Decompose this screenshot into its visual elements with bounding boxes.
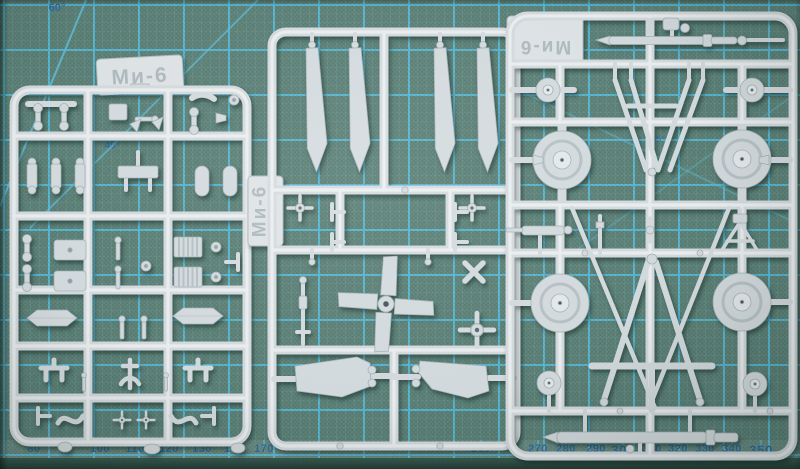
molded-part — [34, 104, 43, 131]
molded-part — [465, 263, 483, 281]
molded-part — [226, 254, 238, 270]
tripod-strut-top — [733, 214, 747, 223]
gun-pod-part — [522, 226, 564, 235]
sprue-gate — [337, 443, 343, 449]
molded-part — [163, 373, 168, 392]
molded-part — [119, 316, 125, 339]
molded-part — [596, 222, 604, 228]
rotor-blade-2 — [345, 47, 371, 172]
molded-part — [202, 408, 214, 424]
sprue-left: Ми-6 — [14, 55, 247, 454]
molded-part — [223, 166, 237, 196]
tail-rotor-blade — [334, 282, 381, 318]
molded-part — [681, 24, 690, 33]
label-tab-right-text: Ми-6 — [519, 36, 571, 57]
sprue-gate — [437, 443, 443, 449]
tail-boom-rod-end — [714, 433, 738, 442]
main-wheel — [531, 274, 589, 332]
tail-rotor-blade — [390, 290, 437, 326]
molded-part — [54, 240, 86, 260]
molded-part — [109, 104, 127, 120]
sprue-gate — [300, 277, 307, 284]
rotor-hub-part — [460, 313, 494, 347]
molded-part — [114, 412, 131, 429]
molded-part — [646, 226, 654, 234]
antenna-mast-part — [297, 282, 309, 344]
pitot-probe — [609, 37, 705, 45]
tail-boom-rod-tip — [543, 432, 558, 443]
molded-part — [121, 360, 139, 388]
sprue-foot — [144, 444, 160, 454]
sprue-gate — [480, 42, 487, 49]
molded-part — [54, 271, 86, 291]
molded-part — [174, 237, 202, 257]
sprue-right-parts — [506, 18, 773, 453]
molded-part — [27, 310, 77, 326]
stabilizer-tab — [412, 379, 420, 387]
rotor-blade-1 — [302, 47, 328, 172]
molded-part — [211, 272, 221, 282]
sprue-gate — [309, 42, 316, 49]
sprue-gate — [352, 42, 359, 49]
molded-part — [171, 416, 196, 423]
molded-part — [58, 416, 83, 423]
molded-part — [141, 261, 151, 271]
molded-part — [138, 412, 155, 429]
molded-part — [75, 158, 85, 194]
tail-wheel — [537, 371, 561, 395]
label-tab-middle-text: Ми-6 — [250, 185, 271, 237]
photo-model-kit-sprues: 8010011012013014017026027028029030031032… — [0, 0, 800, 469]
molded-part — [23, 265, 32, 292]
sprue-gate — [697, 250, 703, 256]
stabilizer-tab — [412, 365, 420, 373]
molded-part — [190, 108, 199, 135]
antenna-mast-collar — [299, 296, 307, 309]
molded-part — [27, 158, 37, 194]
sprue-gate — [647, 254, 657, 264]
tail-rotor-blade — [372, 252, 408, 299]
sprues-scene: Ми-6 — [0, 0, 800, 469]
molded-part — [173, 308, 223, 324]
rotor-blade-4 — [473, 47, 499, 172]
rotor-hub-part — [288, 196, 312, 220]
sprue-right: Ми-6 — [506, 16, 793, 456]
nose-wheel — [536, 78, 560, 102]
sprue-gate — [696, 398, 704, 406]
molded-part — [663, 18, 679, 30]
stabilizer-left — [295, 357, 371, 397]
rotor-hub-part — [460, 196, 484, 220]
sprue-gate — [309, 259, 315, 265]
tail-wheel — [743, 372, 767, 396]
molded-part — [195, 166, 209, 196]
stabilizer-tab — [368, 366, 376, 374]
sprue-gate — [738, 36, 747, 45]
sprue-gate — [425, 259, 431, 265]
molded-part — [81, 373, 86, 392]
molded-part — [118, 166, 158, 178]
sprue-gate — [582, 250, 588, 256]
molded-part — [23, 235, 32, 262]
molded-part — [216, 113, 226, 123]
rotor-blade-3 — [430, 47, 456, 172]
sprue-gate — [626, 445, 634, 453]
molded-part — [174, 267, 202, 287]
sprue-gate — [767, 408, 773, 414]
tail-boom-rod — [557, 432, 707, 443]
molded-part — [192, 95, 214, 99]
molded-part — [185, 360, 211, 380]
sprue-gate — [600, 398, 608, 406]
sprue-middle: Ми-6 — [248, 32, 516, 449]
sprue-gate — [564, 226, 572, 234]
molded-part — [211, 242, 221, 252]
sprue-foot — [58, 442, 72, 452]
molded-part — [41, 360, 67, 380]
molded-part — [51, 158, 61, 194]
stabilizer-tab — [368, 379, 376, 387]
main-wheel — [713, 273, 771, 331]
pitot-probe-tip — [596, 36, 610, 45]
gun-pod-barrel — [506, 228, 523, 232]
sprue-gate — [402, 187, 408, 193]
sprue-gate — [648, 168, 656, 176]
nose-wheel — [740, 78, 764, 102]
molded-part — [229, 95, 239, 105]
molded-part — [141, 316, 147, 339]
sprue-gate — [437, 42, 444, 49]
molded-part — [38, 408, 50, 424]
molded-part — [115, 266, 121, 289]
molded-part — [60, 104, 69, 131]
pitot-probe-end — [711, 37, 737, 44]
sprue-foot — [231, 443, 245, 453]
stabilizer-right — [418, 361, 489, 398]
molded-part — [115, 237, 121, 260]
sprue-gate — [617, 408, 623, 414]
